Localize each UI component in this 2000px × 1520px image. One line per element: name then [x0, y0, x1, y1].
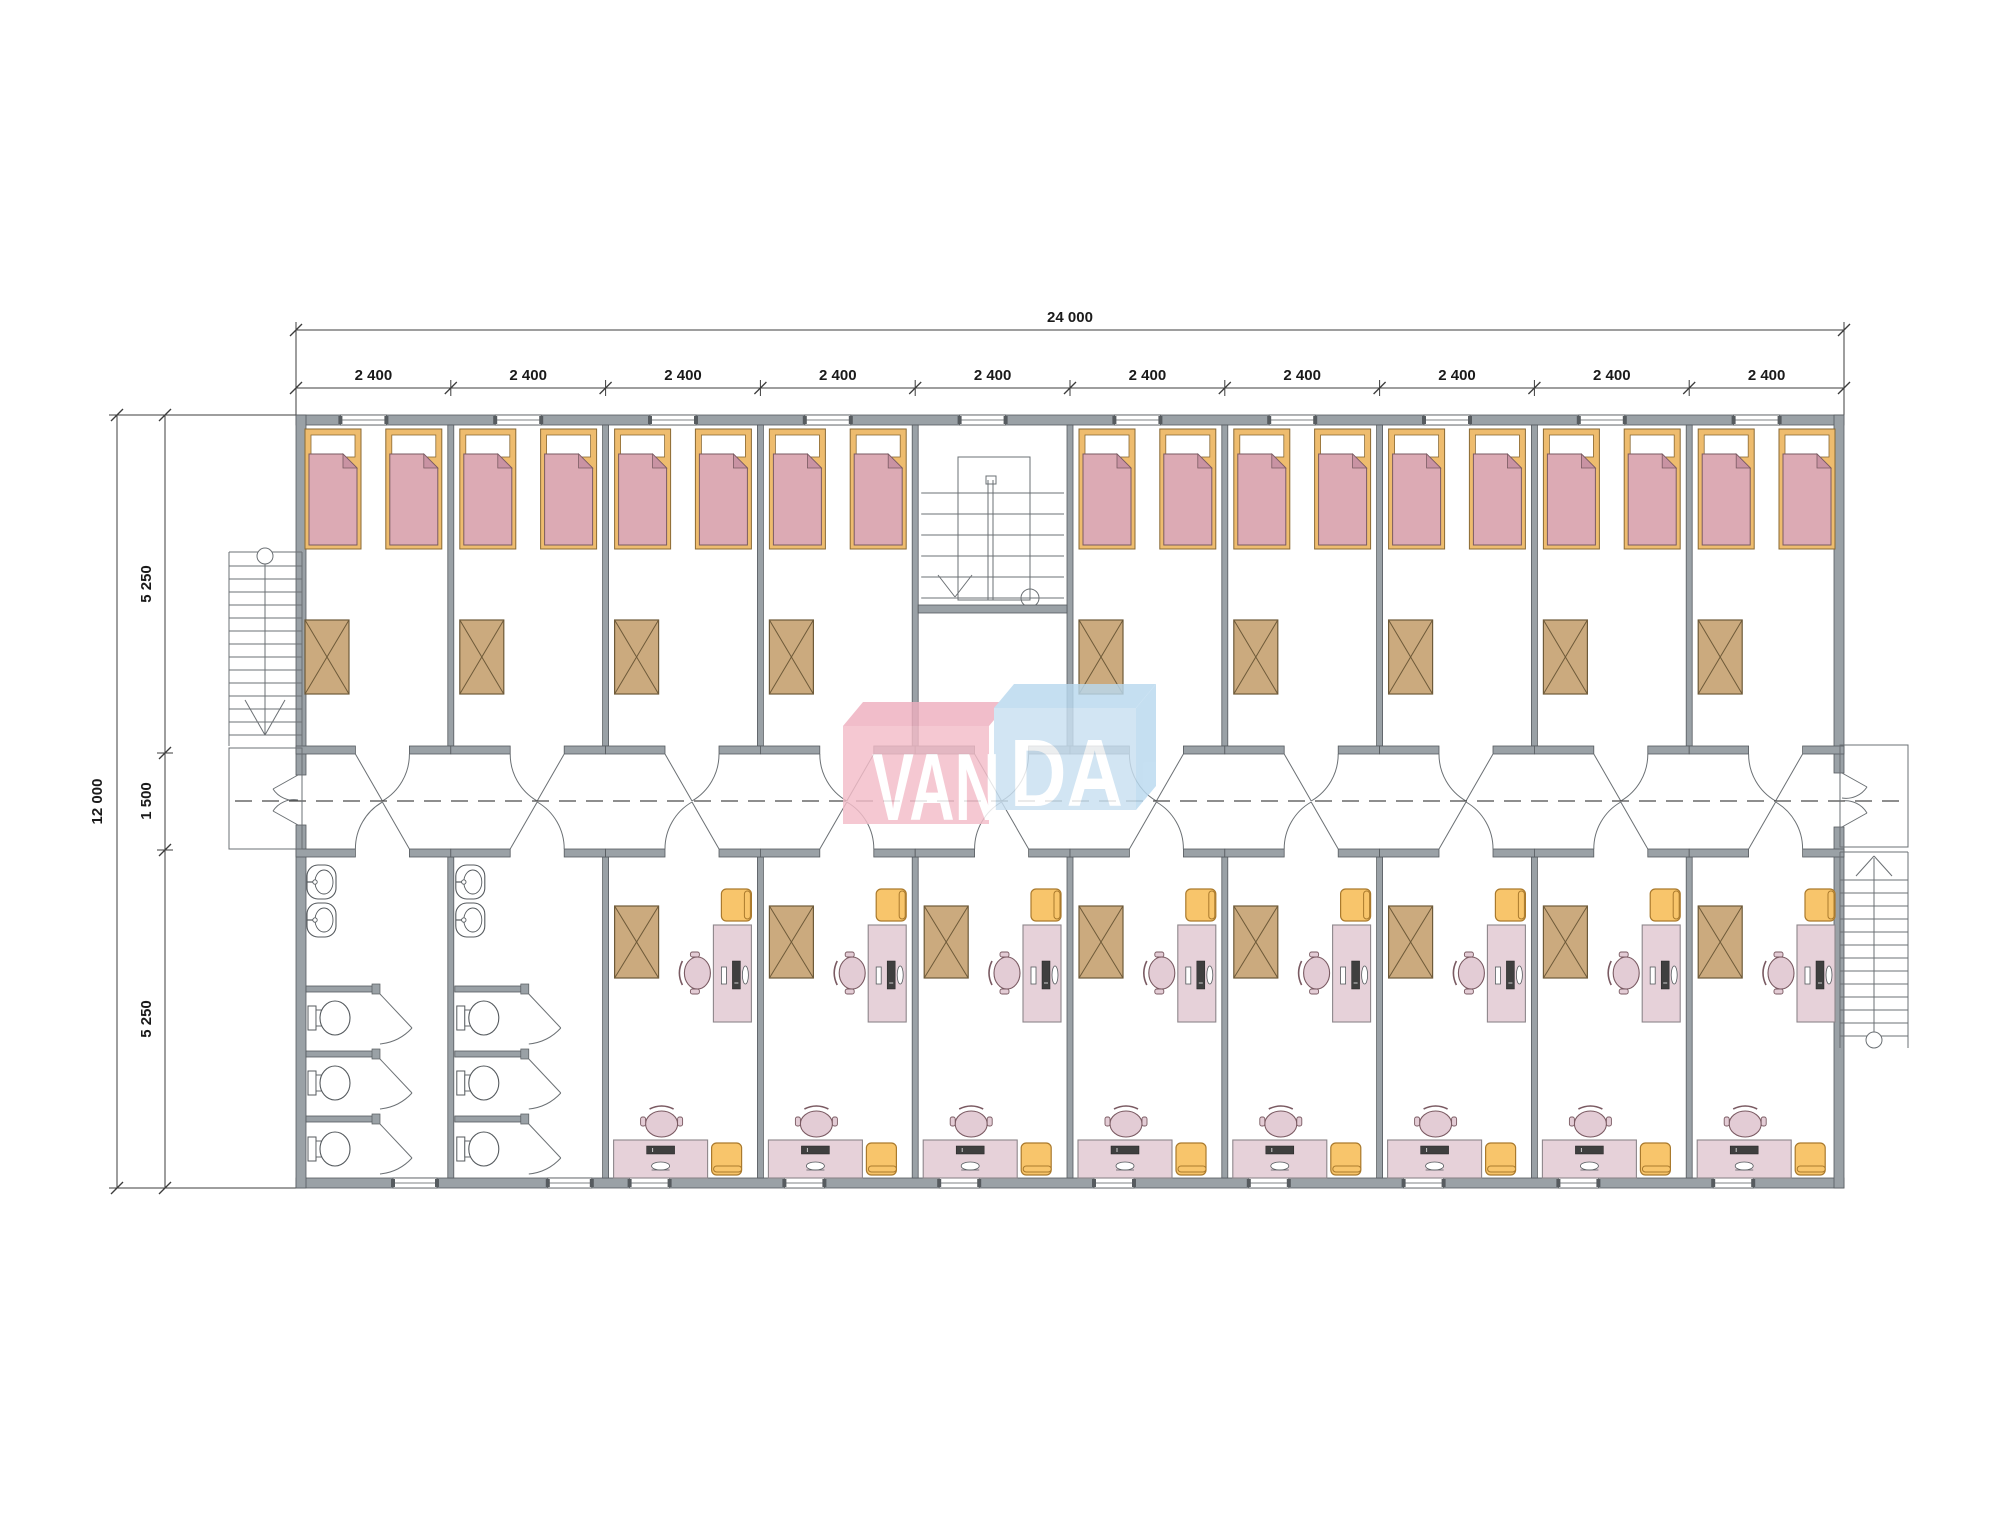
- desk-chair: [950, 1106, 992, 1137]
- bed: [1315, 429, 1371, 549]
- stool: [1795, 1143, 1825, 1175]
- bed: [1234, 429, 1290, 549]
- partition-wall: [1531, 857, 1537, 1178]
- study-room: [923, 889, 1061, 1178]
- bedroom: [460, 429, 597, 694]
- desk-chair: [1415, 1106, 1457, 1137]
- desk: [1078, 1140, 1172, 1178]
- toilet: [308, 1001, 350, 1035]
- bed: [460, 429, 516, 549]
- computer-icon: [956, 1146, 984, 1154]
- door-swing: [510, 802, 564, 849]
- wardrobe: [1234, 906, 1278, 978]
- desk-chair: [795, 1106, 837, 1137]
- door-swing: [1129, 802, 1183, 849]
- wardrobe: [1389, 620, 1433, 694]
- central-stairwell: [918, 457, 1067, 613]
- toilet: [308, 1066, 350, 1100]
- door-swing: [355, 802, 409, 849]
- computer-icon: [647, 1146, 675, 1154]
- bed: [615, 429, 671, 549]
- window: [803, 415, 853, 425]
- partition-wall: [1377, 857, 1383, 1178]
- stool: [866, 1143, 896, 1175]
- desk-chair: [1724, 1106, 1766, 1137]
- desk: [713, 925, 751, 1022]
- wardrobe: [615, 906, 659, 978]
- window: [1556, 1178, 1600, 1188]
- stool: [1805, 889, 1835, 921]
- desk: [1178, 925, 1216, 1022]
- door-swing: [355, 754, 409, 801]
- partition-wall: [1222, 857, 1228, 1178]
- desk: [1697, 1140, 1791, 1178]
- desk: [1797, 925, 1835, 1022]
- toilet: [457, 1066, 499, 1100]
- partition-wall: [603, 425, 609, 746]
- desk: [614, 1140, 708, 1178]
- window: [1577, 415, 1627, 425]
- stool: [876, 889, 906, 921]
- bed: [1079, 429, 1135, 549]
- stool: [712, 1143, 742, 1175]
- window: [1267, 415, 1317, 425]
- sink: [307, 903, 336, 937]
- dimension-label: 2 400: [355, 367, 393, 384]
- door-swing: [665, 754, 719, 801]
- partition-wall: [1377, 425, 1383, 746]
- wardrobe: [769, 906, 813, 978]
- bed: [1469, 429, 1525, 549]
- desk-chair: [1453, 952, 1484, 994]
- stall-door-swing: [380, 1059, 412, 1109]
- study-room: [768, 889, 906, 1178]
- stool: [1341, 889, 1371, 921]
- stool: [1331, 1143, 1361, 1175]
- window: [937, 1178, 981, 1188]
- dimension-label: 24 000: [1047, 309, 1093, 326]
- door-swing: [273, 775, 298, 825]
- stall-door-swing: [529, 1059, 561, 1109]
- sink: [456, 865, 485, 899]
- bed: [386, 429, 442, 549]
- stool: [1486, 1143, 1516, 1175]
- computer-icon: [732, 961, 740, 989]
- bathrooms: [306, 865, 561, 1174]
- desk: [1388, 1140, 1482, 1178]
- wardrobe: [1698, 620, 1742, 694]
- door-swing: [1842, 773, 1867, 827]
- dimension-label: 1 500: [138, 782, 155, 820]
- bedroom: [769, 429, 906, 694]
- stall-door-swing: [529, 1124, 561, 1174]
- study-room: [614, 889, 752, 1178]
- computer-icon: [1730, 1146, 1758, 1154]
- bed: [769, 429, 825, 549]
- window: [391, 1178, 439, 1188]
- desk-chair: [834, 952, 865, 994]
- left-stair: [229, 548, 302, 849]
- bedroom: [1389, 429, 1526, 694]
- stall-door-swing: [380, 994, 412, 1044]
- window: [338, 415, 388, 425]
- door-swing: [1284, 802, 1338, 849]
- window: [546, 1178, 594, 1188]
- dimension-label: 5 250: [138, 565, 155, 603]
- right-stair: [1840, 745, 1908, 1048]
- wardrobe: [305, 620, 349, 694]
- stool: [1650, 889, 1680, 921]
- landing: [229, 748, 302, 849]
- dimension-label: 2 400: [1748, 367, 1786, 384]
- desk-chair: [641, 1106, 683, 1137]
- computer-icon: [1042, 961, 1050, 989]
- partition-wall: [1531, 425, 1537, 746]
- bed: [1160, 429, 1216, 549]
- computer-icon: [1575, 1146, 1603, 1154]
- exterior-wall: [296, 1178, 1844, 1188]
- desk-chair: [1608, 952, 1639, 994]
- desk-chair: [1763, 952, 1794, 994]
- partition-wall: [1686, 425, 1692, 746]
- computer-icon: [1352, 961, 1360, 989]
- desk: [1233, 1140, 1327, 1178]
- bedroom: [1079, 429, 1216, 694]
- computer-icon: [887, 961, 895, 989]
- bed: [305, 429, 361, 549]
- door-swing: [665, 802, 719, 849]
- bedroom: [1698, 429, 1835, 694]
- study-room: [1388, 889, 1526, 1178]
- vanda-logo: VANDA: [843, 684, 1156, 841]
- landing: [1840, 745, 1908, 847]
- desk: [1333, 925, 1371, 1022]
- stool: [1176, 1143, 1206, 1175]
- dimension-label: 2 400: [1593, 367, 1631, 384]
- stool: [1186, 889, 1216, 921]
- wardrobe: [1698, 906, 1742, 978]
- partition-wall: [757, 425, 763, 746]
- dimension-label: 12 000: [89, 779, 106, 825]
- bathroom: [306, 865, 412, 1174]
- bedroom: [615, 429, 752, 694]
- floor-plan-canvas: 24 0002 4002 4002 4002 4002 4002 4002 40…: [0, 0, 2000, 1520]
- wardrobe: [1234, 620, 1278, 694]
- partition-wall: [448, 857, 454, 1178]
- stool: [721, 889, 751, 921]
- dimension-label: 2 400: [509, 367, 547, 384]
- window: [648, 415, 698, 425]
- wardrobe: [1543, 906, 1587, 978]
- desk: [768, 1140, 862, 1178]
- partition-wall: [1222, 425, 1228, 746]
- door-swing: [1594, 754, 1648, 801]
- toilet: [308, 1132, 350, 1166]
- stall-door-swing: [529, 994, 561, 1044]
- desk-chair: [679, 952, 710, 994]
- stool: [1495, 889, 1525, 921]
- wardrobe: [1079, 906, 1123, 978]
- computer-icon: [1421, 1146, 1449, 1154]
- partition-wall: [1067, 857, 1073, 1178]
- desk-chair: [1299, 952, 1330, 994]
- logo-text-da: DA: [1010, 720, 1123, 827]
- computer-icon: [1506, 961, 1514, 989]
- dimension-label: 2 400: [819, 367, 857, 384]
- desk-chair: [1105, 1106, 1147, 1137]
- floor-plan: 24 0002 4002 4002 4002 4002 4002 4002 40…: [0, 0, 2000, 1520]
- window: [493, 415, 543, 425]
- bed: [1543, 429, 1599, 549]
- wardrobe: [615, 620, 659, 694]
- door-swing: [1439, 802, 1493, 849]
- logo-text-van: VAN: [872, 734, 1000, 841]
- sink: [456, 903, 485, 937]
- dimension-label: 2 400: [1129, 367, 1167, 384]
- window: [1422, 415, 1472, 425]
- desk: [1023, 925, 1061, 1022]
- window: [1732, 415, 1782, 425]
- study-room: [1078, 889, 1216, 1178]
- desk-chair: [989, 952, 1020, 994]
- study-room: [1542, 889, 1680, 1178]
- dimension-label: 2 400: [1283, 367, 1321, 384]
- study-room: [1697, 889, 1835, 1178]
- computer-icon: [1661, 961, 1669, 989]
- partition-wall: [757, 857, 763, 1178]
- dimension-label: 5 250: [138, 1000, 155, 1038]
- window: [1247, 1178, 1291, 1188]
- desk: [1487, 925, 1525, 1022]
- dimension-label: 2 400: [664, 367, 702, 384]
- window: [1112, 415, 1162, 425]
- stool: [1640, 1143, 1670, 1175]
- desk: [868, 925, 906, 1022]
- dimension-label: 2 400: [974, 367, 1012, 384]
- bed: [1624, 429, 1680, 549]
- wardrobe: [1543, 620, 1587, 694]
- bed: [1698, 429, 1754, 549]
- door-swing: [1439, 754, 1493, 801]
- door-swing: [1594, 802, 1648, 849]
- partition-wall: [448, 425, 454, 746]
- bedroom: [1234, 429, 1371, 694]
- partition-wall: [912, 425, 918, 746]
- door-swing: [1749, 802, 1803, 849]
- desk: [1542, 1140, 1636, 1178]
- study-room: [1233, 889, 1371, 1178]
- desk-chair: [1144, 952, 1175, 994]
- wardrobe: [769, 620, 813, 694]
- logo-slab-pink-top: [843, 702, 1009, 726]
- computer-icon: [801, 1146, 829, 1154]
- window: [1092, 1178, 1136, 1188]
- window: [1402, 1178, 1446, 1188]
- desk-chair: [1260, 1106, 1302, 1137]
- window: [628, 1178, 672, 1188]
- desk: [923, 1140, 1017, 1178]
- bed: [850, 429, 906, 549]
- computer-icon: [1197, 961, 1205, 989]
- stool: [1021, 1143, 1051, 1175]
- window: [1711, 1178, 1755, 1188]
- wardrobe: [924, 906, 968, 978]
- partition-wall: [603, 857, 609, 1178]
- bedroom: [1543, 429, 1680, 694]
- logo-slab-blue-top: [994, 684, 1156, 708]
- door-swing: [1749, 754, 1803, 801]
- bedroom: [305, 429, 442, 694]
- computer-icon: [1266, 1146, 1294, 1154]
- door-swing: [510, 754, 564, 801]
- window: [958, 415, 1008, 425]
- wardrobe: [1389, 906, 1433, 978]
- desk-chair: [1569, 1106, 1611, 1137]
- wardrobe: [1079, 620, 1123, 694]
- toilet: [457, 1132, 499, 1166]
- stool: [1031, 889, 1061, 921]
- toilet: [457, 1001, 499, 1035]
- wardrobe: [460, 620, 504, 694]
- partition-wall: [1686, 857, 1692, 1178]
- window: [782, 1178, 826, 1188]
- dimension-label: 2 400: [1438, 367, 1476, 384]
- desk: [1642, 925, 1680, 1022]
- door-swing: [1284, 754, 1338, 801]
- bed: [1779, 429, 1835, 549]
- computer-icon: [1111, 1146, 1139, 1154]
- sink: [307, 865, 336, 899]
- bed: [695, 429, 751, 549]
- bathroom: [455, 865, 561, 1174]
- computer-icon: [1816, 961, 1824, 989]
- stall-door-swing: [380, 1124, 412, 1174]
- bed: [1389, 429, 1445, 549]
- exterior-wall: [296, 825, 306, 1188]
- partition-wall: [912, 857, 918, 1178]
- bed: [541, 429, 597, 549]
